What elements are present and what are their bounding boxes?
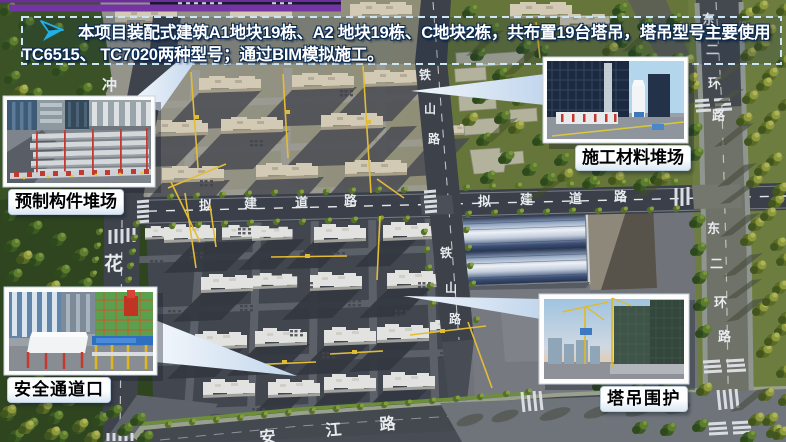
svg-text:拟: 拟 [478,194,491,209]
svg-text:路: 路 [718,329,732,344]
svg-text:环: 环 [714,295,727,310]
svg-text:路: 路 [428,131,441,146]
svg-text:路: 路 [379,414,398,434]
svg-text:花: 花 [104,252,123,275]
svg-text:建: 建 [244,196,257,211]
svg-text:路: 路 [449,311,462,326]
svg-text:路: 路 [712,108,726,123]
svg-text:铁: 铁 [419,67,431,82]
svg-text:路: 路 [614,189,628,204]
svg-text:山: 山 [445,280,457,295]
svg-text:安: 安 [259,427,277,442]
svg-text:冲: 冲 [102,76,117,94]
svg-text:道: 道 [295,195,308,210]
svg-text:江: 江 [325,421,343,440]
svg-text:东: 东 [707,221,720,236]
svg-text:道: 道 [569,191,582,206]
svg-text:山: 山 [424,101,436,116]
svg-text:建: 建 [520,192,533,207]
svg-text:二: 二 [710,256,723,271]
svg-text:路: 路 [344,193,358,208]
svg-text:铁: 铁 [440,245,452,260]
